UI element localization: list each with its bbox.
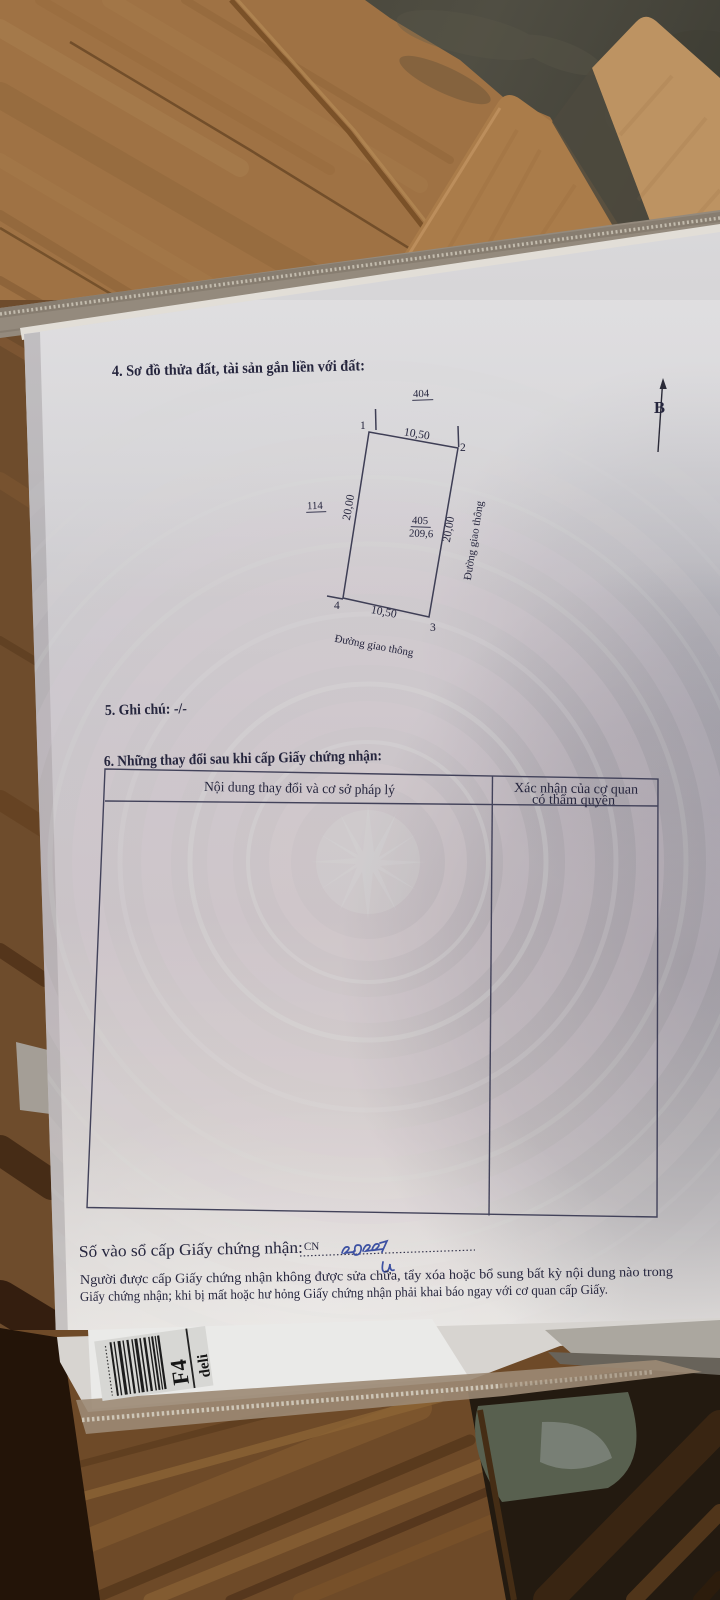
svg-text:5. Ghi chú: -/-: 5. Ghi chú: -/- — [105, 701, 187, 719]
svg-text:405: 405 — [412, 515, 429, 528]
svg-text:2: 2 — [460, 442, 466, 454]
svg-text:B: B — [654, 398, 665, 417]
svg-text:404: 404 — [413, 388, 430, 401]
svg-text:deli: deli — [195, 1353, 214, 1378]
svg-text:4: 4 — [334, 600, 340, 612]
svg-text:209,6: 209,6 — [409, 527, 434, 540]
svg-text:114: 114 — [307, 500, 324, 513]
svg-text:1: 1 — [360, 420, 366, 432]
svg-text:3: 3 — [430, 622, 436, 634]
svg-text:F4: F4 — [166, 1357, 194, 1386]
svg-text:có thẩm quyền: có thẩm quyền — [532, 793, 615, 809]
svg-text:CN: CN — [304, 1241, 320, 1253]
